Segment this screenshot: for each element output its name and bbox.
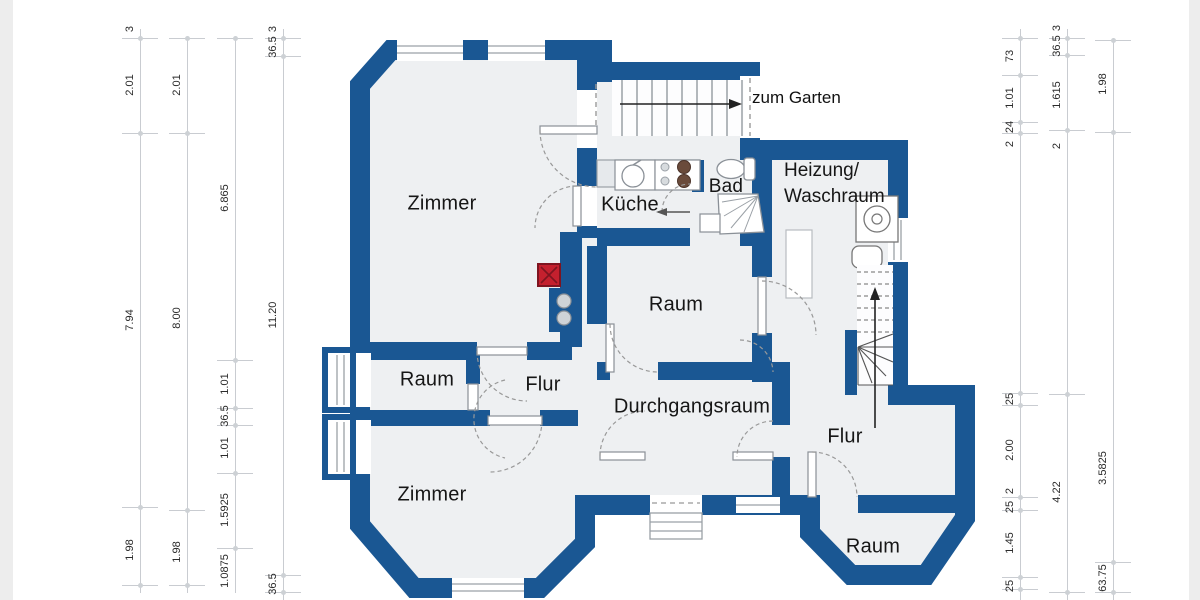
dimension-label: 4.22	[1051, 481, 1063, 502]
dimension-label: 8.00	[171, 307, 183, 328]
dimension-tick-dot	[185, 131, 190, 136]
dimension-tick-dot	[1018, 495, 1023, 500]
room-label-raum-bottom: Raum	[846, 536, 900, 559]
kitchen-fixtures	[597, 160, 700, 190]
dimension-tick-dot	[1018, 575, 1023, 580]
dimension-label: 36.5	[267, 36, 279, 57]
dimension-tick-dot	[233, 471, 238, 476]
dimension-tick-dot	[1018, 403, 1023, 408]
room-label-flur-right: Flur	[827, 426, 862, 449]
dimension-tick-dot	[1065, 36, 1070, 41]
floorplan-page: Zimmer Küche Bad Heizung/ Waschraum Raum…	[0, 0, 1200, 600]
dimension-tick-dot	[233, 423, 238, 428]
room-label-raum-center: Raum	[649, 294, 703, 317]
dimension-tick-dot	[233, 406, 238, 411]
dimension-tick-dot	[233, 36, 238, 41]
room-label-flur-left: Flur	[525, 374, 560, 397]
room-label-bad: Bad	[709, 176, 743, 198]
dimension-line	[1113, 38, 1114, 600]
dimension-tick-dot	[1065, 590, 1070, 595]
room-label-zimmer-top: Zimmer	[408, 193, 477, 216]
dimension-label: 2.01	[171, 74, 183, 95]
dimension-tick-dot	[1018, 131, 1023, 136]
dimension-tick-dot	[1018, 587, 1023, 592]
dimension-label: 6.865	[219, 184, 231, 212]
dimension-label: 1.01	[219, 373, 231, 394]
dimension-tick-dot	[281, 573, 286, 578]
boiler-icon	[786, 230, 812, 298]
dimension-label: 36.5	[1051, 35, 1063, 56]
dimension-label: 1.98	[171, 541, 183, 562]
dimension-label: 1.615	[1051, 81, 1063, 109]
dimension-tick-dot	[1018, 36, 1023, 41]
dimension-tick-dot	[185, 36, 190, 41]
dimension-label: 2	[1051, 143, 1063, 149]
dimension-label: 25	[1004, 580, 1016, 592]
dimension-tick-dot	[1065, 392, 1070, 397]
dimension-tick-dot	[1111, 38, 1116, 43]
dimension-label: 25	[1004, 501, 1016, 513]
dimension-line	[1020, 29, 1021, 600]
dimension-tick-dot	[1111, 560, 1116, 565]
basin-icon	[700, 214, 720, 232]
dimension-label: 1.01	[219, 437, 231, 458]
dimension-label: 73	[1004, 50, 1016, 62]
dimension-line	[1067, 29, 1068, 600]
dimension-tick-dot	[233, 546, 238, 551]
dimension-label: 3	[124, 26, 136, 32]
dimension-tick-dot	[1018, 73, 1023, 78]
dimension-tick-dot	[138, 36, 143, 41]
dimension-tick-dot	[1018, 508, 1023, 513]
annotation-zum-garten: zum Garten	[752, 88, 841, 108]
room-label-heizung: Heizung/ Waschraum	[784, 158, 885, 210]
room-label-raum-left: Raum	[400, 369, 454, 392]
dimension-tick-dot	[281, 590, 286, 595]
dimension-label: 3	[267, 26, 279, 32]
laundry-sink-icon	[852, 246, 882, 268]
dimension-label: 11.20	[267, 302, 279, 329]
dimension-label: 1.5925	[219, 493, 231, 527]
dimension-label: 2	[1004, 141, 1016, 147]
room-label-heizung-line1: Heizung/	[784, 158, 885, 184]
dimension-line	[235, 38, 236, 593]
dimension-line	[283, 29, 284, 600]
dimension-tick-dot	[281, 36, 286, 41]
dimension-tick-dot	[185, 508, 190, 513]
dimension-tick-dot	[138, 583, 143, 588]
dimension-label: 3.5825	[1097, 451, 1109, 485]
dimension-tick-dot	[233, 358, 238, 363]
room-label-heizung-line2: Waschraum	[784, 184, 885, 210]
dimension-tick-dot	[138, 505, 143, 510]
dimension-label: 63.75	[1097, 564, 1109, 592]
dimension-label: 2.00	[1004, 439, 1016, 460]
room-label-zimmer-bottom: Zimmer	[398, 484, 467, 507]
room-label-durchgangsraum: Durchgangsraum	[614, 396, 770, 419]
dimension-tick-dot	[1018, 391, 1023, 396]
dimension-label: 3	[1051, 25, 1063, 31]
dimension-tick-dot	[138, 131, 143, 136]
dimension-tick-dot	[1065, 128, 1070, 133]
dimension-tick-dot	[185, 583, 190, 588]
garden-stairs	[596, 78, 750, 136]
dimension-label: 36.5	[219, 405, 231, 426]
dimension-tick-dot	[1065, 53, 1070, 58]
dimension-tick-dot	[1111, 130, 1116, 135]
dimension-label: 1.98	[1097, 73, 1109, 94]
dimension-tick-dot	[281, 54, 286, 59]
dimension-label: 1.01	[1004, 87, 1016, 108]
dimension-label: 25	[1004, 393, 1016, 405]
dimension-label: 2.01	[124, 74, 136, 95]
dimension-label: 36.5	[267, 573, 279, 594]
dimension-tick-dot	[1111, 590, 1116, 595]
dimension-label: 2	[1004, 488, 1016, 494]
room-label-kueche: Küche	[601, 194, 659, 217]
dimension-label: 1.0875	[219, 554, 231, 588]
dimension-label: 1.98	[124, 539, 136, 560]
dimension-label: 1.45	[1004, 532, 1016, 553]
shower-icon	[718, 194, 764, 234]
dimension-label: 24	[1004, 121, 1016, 133]
dimension-tick-dot	[1018, 120, 1023, 125]
dimension-label: 7.94	[124, 309, 136, 330]
